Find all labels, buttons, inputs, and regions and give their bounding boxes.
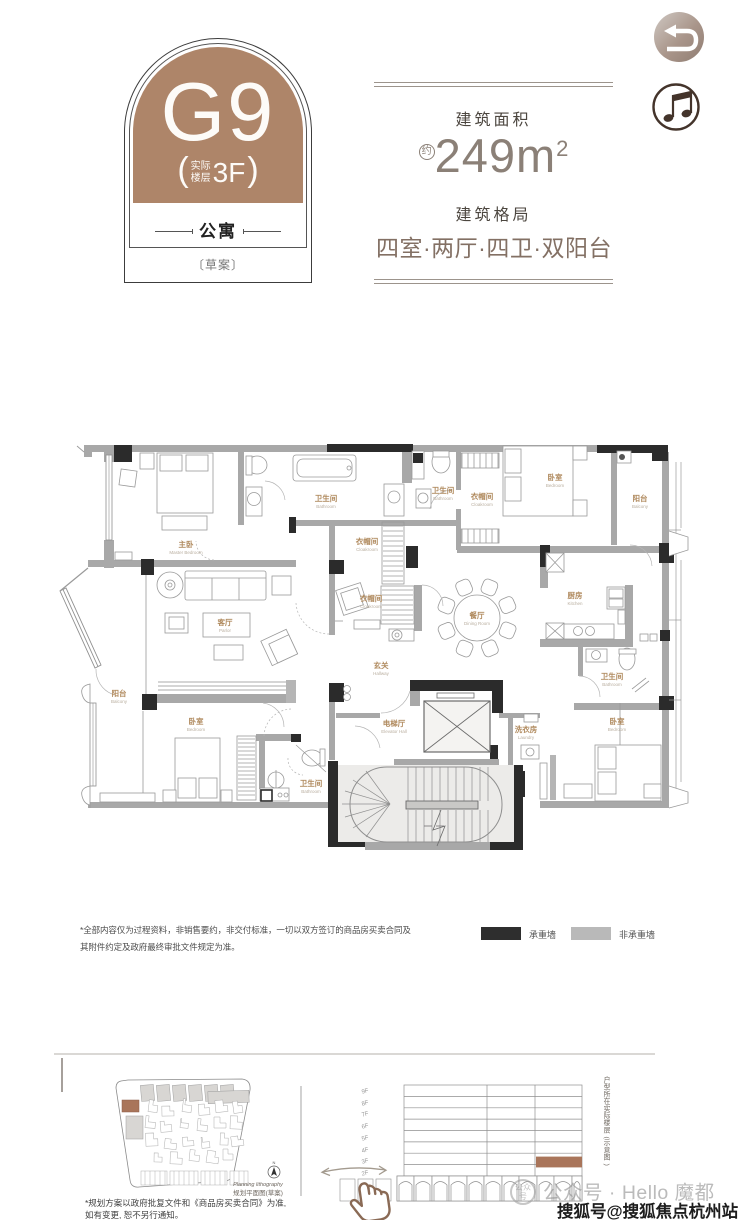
svg-text:餐厅: 餐厅	[469, 610, 485, 620]
svg-text:卫生间: 卫生间	[300, 778, 323, 788]
svg-text:Planning lithography: Planning lithography	[233, 1182, 284, 1188]
svg-text:): )	[603, 1164, 610, 1166]
svg-text:Balcony: Balcony	[111, 699, 128, 704]
svg-text:4F: 4F	[361, 1147, 370, 1155]
svg-text:衣帽间: 衣帽间	[360, 593, 383, 603]
svg-text:阳台: 阳台	[112, 688, 127, 698]
svg-text:Elevator Hall: Elevator Hall	[381, 729, 407, 734]
svg-text:示: 示	[604, 1139, 611, 1147]
svg-text:Bathroom: Bathroom	[602, 682, 622, 687]
svg-text:3F: 3F	[361, 1158, 370, 1166]
svg-text:Hallway: Hallway	[373, 671, 390, 676]
svg-text:非承重墙: 非承重墙	[619, 929, 655, 940]
svg-text:Bedroom: Bedroom	[608, 727, 627, 732]
svg-text:图: 图	[604, 1154, 611, 1162]
svg-text:5F: 5F	[361, 1135, 370, 1143]
svg-text:电梯厅: 电梯厅	[383, 718, 406, 728]
svg-text:Bathroom: Bathroom	[316, 504, 336, 509]
svg-text:洗衣房: 洗衣房	[515, 724, 538, 734]
svg-text:承重墙: 承重墙	[529, 929, 556, 940]
svg-text:Bedroom: Bedroom	[546, 483, 565, 488]
svg-text:楼: 楼	[604, 1118, 611, 1127]
svg-text:(: (	[603, 1137, 610, 1140]
svg-text:户: 户	[604, 1075, 611, 1084]
svg-text:Parlor: Parlor	[219, 628, 232, 633]
svg-text:阳台: 阳台	[633, 493, 648, 503]
svg-text:厨房: 厨房	[568, 590, 583, 600]
svg-text:卫生间: 卫生间	[315, 493, 338, 503]
svg-text:所: 所	[604, 1089, 611, 1098]
svg-text:际: 际	[604, 1111, 611, 1120]
svg-text:Balcony: Balcony	[632, 504, 649, 509]
svg-text:意: 意	[604, 1145, 611, 1154]
svg-text:8F: 8F	[361, 1100, 370, 1108]
svg-text:Cloakroom: Cloakroom	[471, 502, 493, 507]
svg-text:6F: 6F	[361, 1123, 370, 1131]
svg-text:9F: 9F	[361, 1088, 370, 1096]
svg-text:2F: 2F	[361, 1170, 370, 1178]
svg-text:Cloakroom: Cloakroom	[356, 547, 378, 552]
svg-text:实: 实	[604, 1104, 611, 1113]
svg-text:规划平面图(草案): 规划平面图(草案)	[233, 1188, 283, 1197]
svg-text:卫生间: 卫生间	[601, 671, 624, 681]
svg-text:玄关: 玄关	[374, 660, 389, 670]
svg-text:卧室: 卧室	[610, 716, 625, 726]
svg-text:Bathroom: Bathroom	[433, 496, 453, 501]
svg-text:N: N	[273, 1160, 276, 1165]
svg-text:层: 层	[604, 1126, 611, 1134]
svg-text:Dining Room: Dining Room	[464, 621, 490, 626]
svg-text:Bathroom: Bathroom	[301, 789, 321, 794]
svg-text:主卧: 主卧	[179, 539, 194, 549]
svg-text:7F: 7F	[361, 1111, 370, 1119]
svg-text:卫生间: 卫生间	[432, 485, 455, 495]
svg-text:Cloakroom: Cloakroom	[360, 604, 382, 609]
svg-text:Bedroom: Bedroom	[187, 727, 206, 732]
svg-text:衣帽间: 衣帽间	[471, 491, 494, 501]
svg-text:型: 型	[604, 1082, 611, 1091]
svg-text:Master Bedroom: Master Bedroom	[169, 550, 203, 555]
svg-text:在: 在	[604, 1097, 611, 1106]
svg-text:Laundry: Laundry	[518, 735, 535, 740]
svg-text:卧室: 卧室	[548, 472, 563, 482]
svg-text:卧室: 卧室	[189, 716, 204, 726]
svg-text:衣帽间: 衣帽间	[356, 536, 379, 546]
svg-text:Kitchen: Kitchen	[567, 601, 583, 606]
svg-text:客厅: 客厅	[217, 617, 233, 627]
